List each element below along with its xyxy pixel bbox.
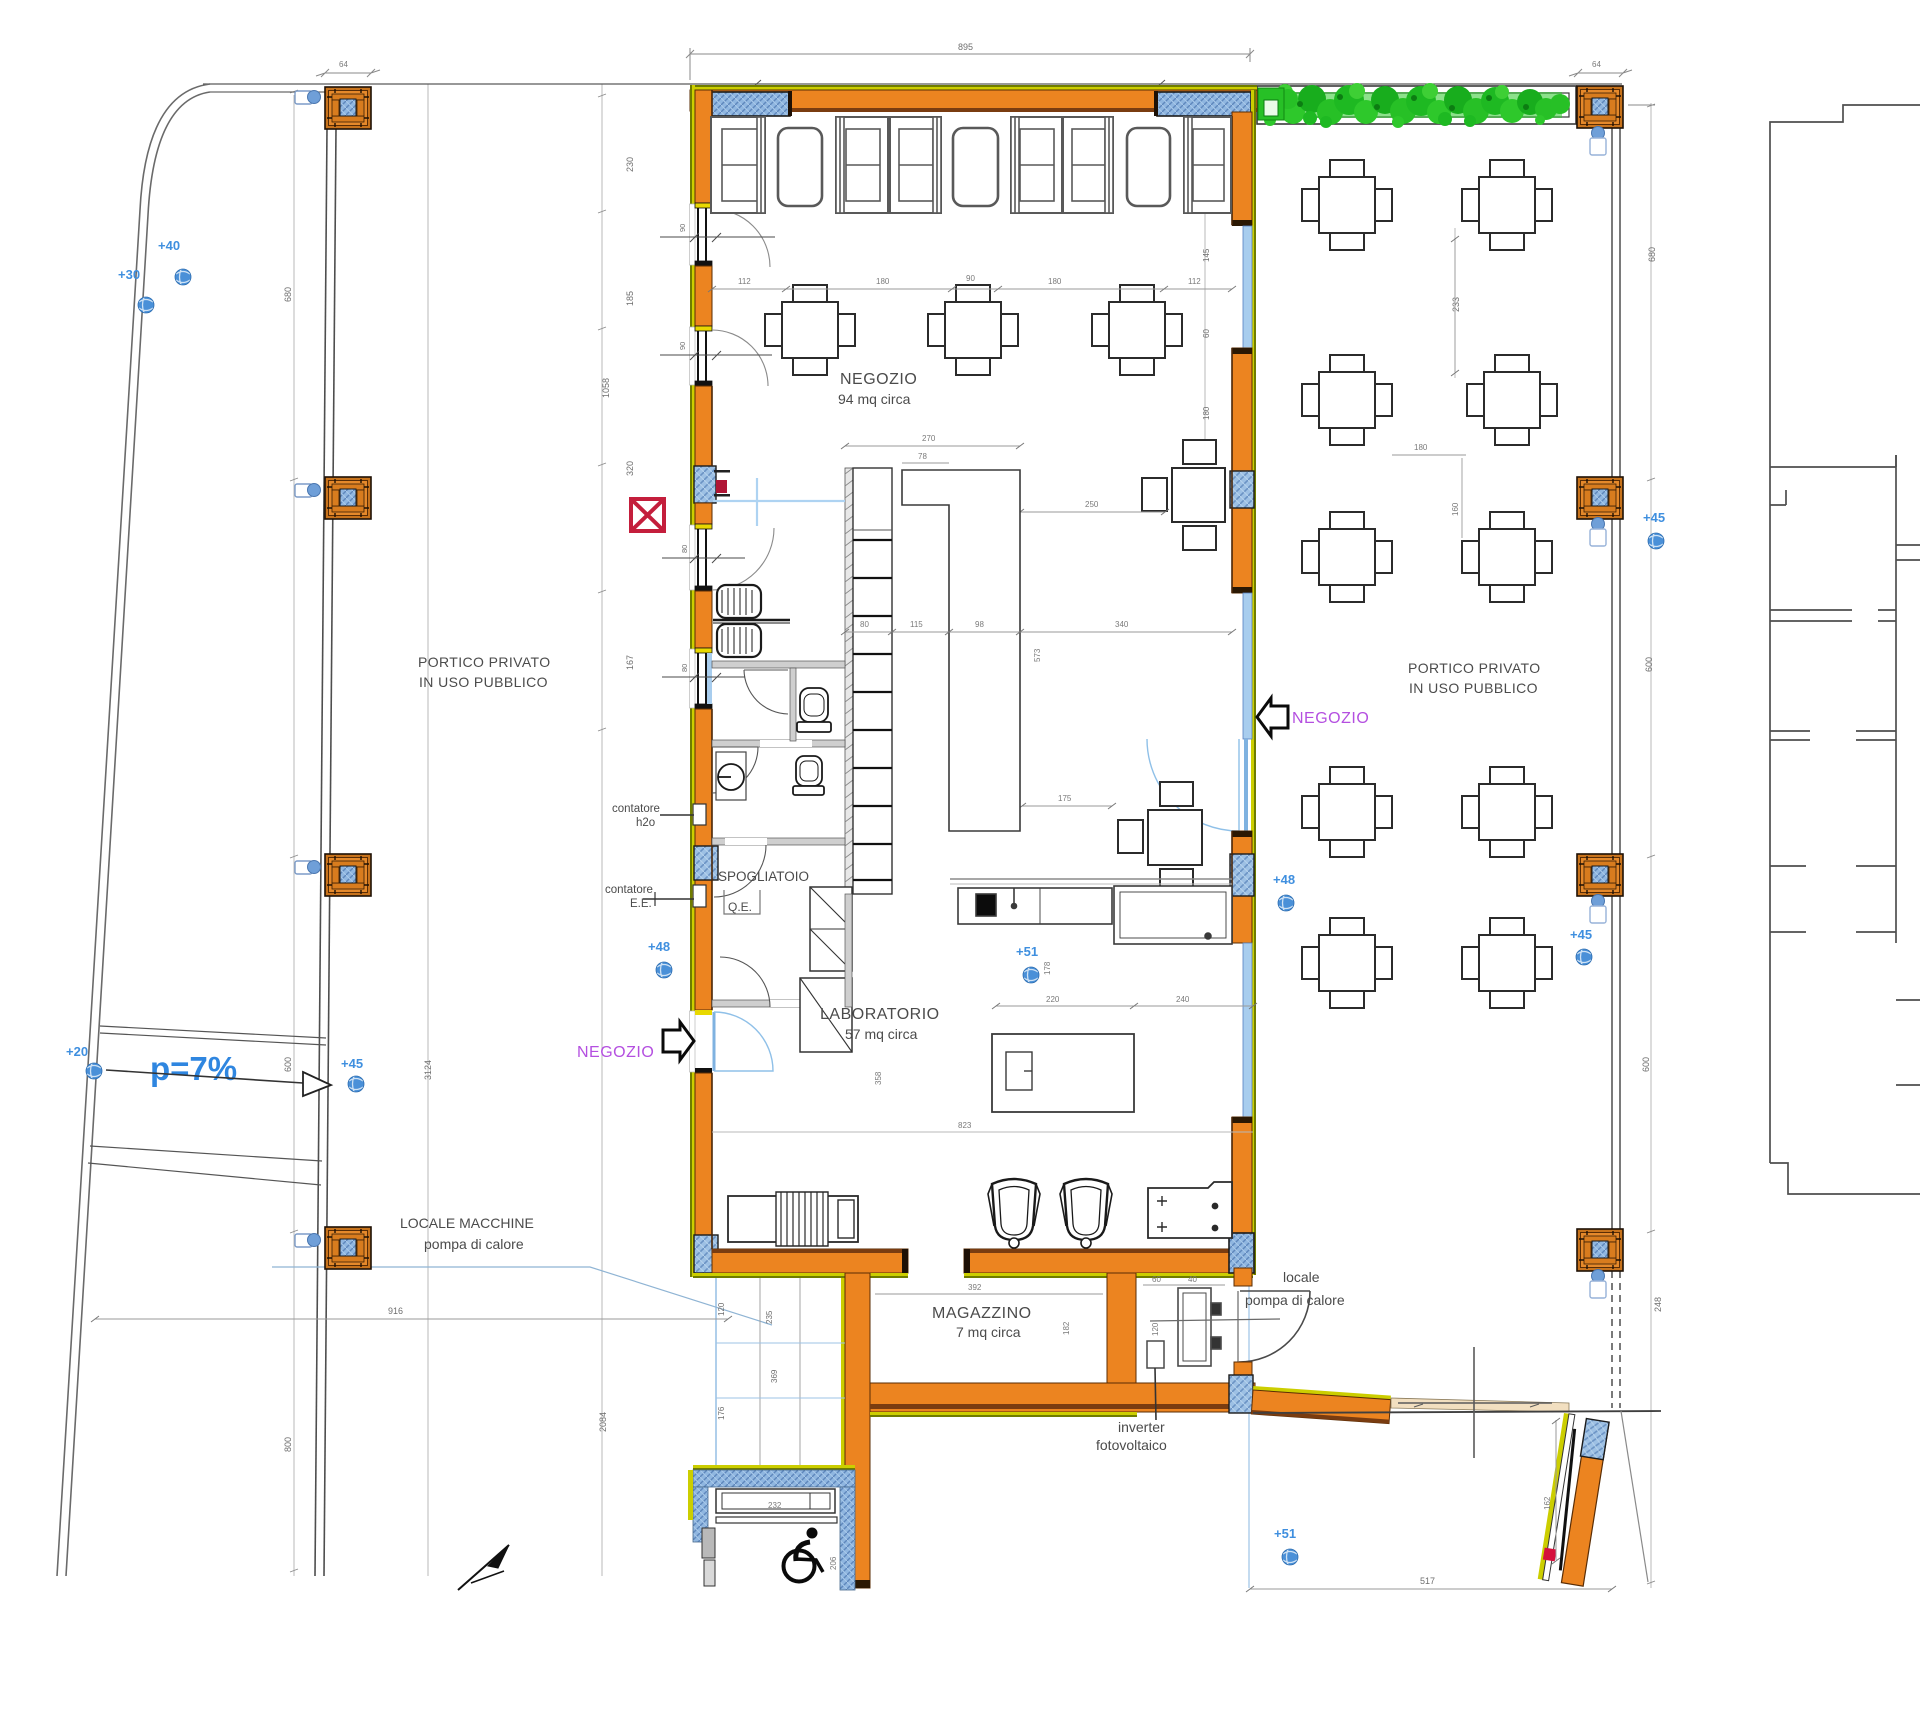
svg-text:60: 60 <box>1152 1275 1161 1284</box>
svg-text:+45: +45 <box>1570 927 1592 942</box>
svg-text:916: 916 <box>388 1306 403 1316</box>
svg-text:PORTICO PRIVATO: PORTICO PRIVATO <box>418 654 551 670</box>
svg-text:contatore: contatore <box>612 803 660 815</box>
svg-text:NEGOZIO: NEGOZIO <box>840 371 917 388</box>
svg-text:600: 600 <box>1641 1057 1651 1072</box>
svg-text:3124: 3124 <box>423 1060 433 1080</box>
svg-text:823: 823 <box>958 1121 972 1130</box>
svg-text:p=7%: p=7% <box>150 1050 237 1087</box>
svg-text:57 mq circa: 57 mq circa <box>845 1026 918 1042</box>
svg-text:7 mq circa: 7 mq circa <box>956 1324 1021 1340</box>
svg-text:Q.E.: Q.E. <box>728 900 752 914</box>
svg-text:IN USO PUBBLICO: IN USO PUBBLICO <box>1409 680 1538 696</box>
svg-text:+45: +45 <box>1643 510 1665 525</box>
svg-text:+51: +51 <box>1016 944 1038 959</box>
svg-text:233: 233 <box>1451 297 1461 312</box>
svg-text:895: 895 <box>958 42 973 52</box>
svg-text:680: 680 <box>283 287 293 302</box>
svg-text:340: 340 <box>1115 620 1129 629</box>
svg-text:+30: +30 <box>118 267 140 282</box>
svg-text:LOCALE MACCHINE: LOCALE MACCHINE <box>400 1215 534 1231</box>
svg-text:185: 185 <box>625 291 635 306</box>
svg-text:pompa di calore: pompa di calore <box>424 1236 524 1252</box>
svg-text:573: 573 <box>1033 648 1042 662</box>
svg-text:115: 115 <box>910 620 923 629</box>
svg-text:94 mq circa: 94 mq circa <box>838 391 911 407</box>
svg-text:NEGOZIO: NEGOZIO <box>577 1044 654 1061</box>
svg-text:180: 180 <box>876 277 890 286</box>
svg-text:+20: +20 <box>66 1044 88 1059</box>
svg-text:90: 90 <box>966 274 975 283</box>
svg-text:178: 178 <box>1043 961 1052 975</box>
svg-text:320: 320 <box>625 461 635 476</box>
svg-text:180: 180 <box>1414 443 1428 452</box>
svg-text:160: 160 <box>1451 502 1460 516</box>
svg-text:LABORATORIO: LABORATORIO <box>820 1006 940 1023</box>
svg-text:176: 176 <box>717 1406 726 1420</box>
svg-text:800: 800 <box>283 1437 293 1452</box>
svg-text:IN USO PUBBLICO: IN USO PUBBLICO <box>419 674 548 690</box>
svg-text:120: 120 <box>1151 1322 1160 1336</box>
svg-text:220: 220 <box>1046 995 1060 1004</box>
svg-text:90: 90 <box>678 224 687 232</box>
svg-text:+40: +40 <box>158 238 180 253</box>
svg-text:80: 80 <box>680 664 689 672</box>
svg-text:MAGAZZINO: MAGAZZINO <box>932 1305 1032 1322</box>
svg-text:270: 270 <box>922 434 936 443</box>
svg-text:240: 240 <box>1176 995 1190 1004</box>
svg-text:98: 98 <box>975 620 984 629</box>
svg-text:162: 162 <box>1543 1496 1552 1510</box>
svg-text:78: 78 <box>918 452 927 461</box>
svg-text:369: 369 <box>770 1369 779 1383</box>
svg-text:206: 206 <box>829 1556 838 1570</box>
svg-text:80: 80 <box>680 545 689 553</box>
svg-text:182: 182 <box>1062 1321 1071 1335</box>
svg-text:232: 232 <box>768 1501 782 1510</box>
svg-text:1058: 1058 <box>601 378 611 398</box>
svg-text:inverter: inverter <box>1118 1419 1165 1435</box>
svg-text:175: 175 <box>1058 794 1072 803</box>
svg-text:40: 40 <box>1188 1275 1197 1284</box>
svg-text:+45: +45 <box>341 1056 363 1071</box>
svg-text:SPOGLIATOIO: SPOGLIATOIO <box>718 869 809 884</box>
svg-text:180: 180 <box>1048 277 1062 286</box>
svg-text:2084: 2084 <box>598 1412 608 1432</box>
svg-text:230: 230 <box>625 157 635 172</box>
svg-text:120: 120 <box>717 1302 726 1316</box>
svg-text:358: 358 <box>874 1071 883 1085</box>
svg-text:h2o: h2o <box>636 817 655 829</box>
svg-text:90: 90 <box>678 342 687 350</box>
svg-text:167: 167 <box>625 655 635 670</box>
svg-text:250: 250 <box>1085 500 1099 509</box>
svg-text:64: 64 <box>339 60 348 69</box>
svg-text:112: 112 <box>1188 277 1201 286</box>
svg-text:112: 112 <box>738 277 751 286</box>
svg-text:145: 145 <box>1202 248 1211 262</box>
svg-text:locale: locale <box>1283 1269 1320 1285</box>
svg-text:+48: +48 <box>648 939 670 954</box>
svg-text:80: 80 <box>860 620 869 629</box>
svg-text:248: 248 <box>1653 1297 1663 1312</box>
svg-text:NEGOZIO: NEGOZIO <box>1292 710 1369 727</box>
svg-text:517: 517 <box>1420 1576 1435 1586</box>
svg-text:600: 600 <box>1644 657 1654 672</box>
svg-text:180: 180 <box>1202 406 1211 420</box>
svg-text:pompa di calore: pompa di calore <box>1245 1292 1345 1308</box>
svg-text:E.E.: E.E. <box>630 898 652 910</box>
svg-text:64: 64 <box>1592 60 1601 69</box>
svg-text:600: 600 <box>283 1057 293 1072</box>
svg-text:PORTICO PRIVATO: PORTICO PRIVATO <box>1408 660 1541 676</box>
svg-text:60: 60 <box>1202 329 1211 338</box>
svg-text:392: 392 <box>968 1283 982 1292</box>
svg-text:+51: +51 <box>1274 1526 1296 1541</box>
svg-text:235: 235 <box>765 1310 774 1324</box>
svg-text:680: 680 <box>1647 247 1657 262</box>
svg-text:contatore: contatore <box>605 884 653 896</box>
svg-text:fotovoltaico: fotovoltaico <box>1096 1437 1167 1453</box>
svg-text:+48: +48 <box>1273 872 1295 887</box>
